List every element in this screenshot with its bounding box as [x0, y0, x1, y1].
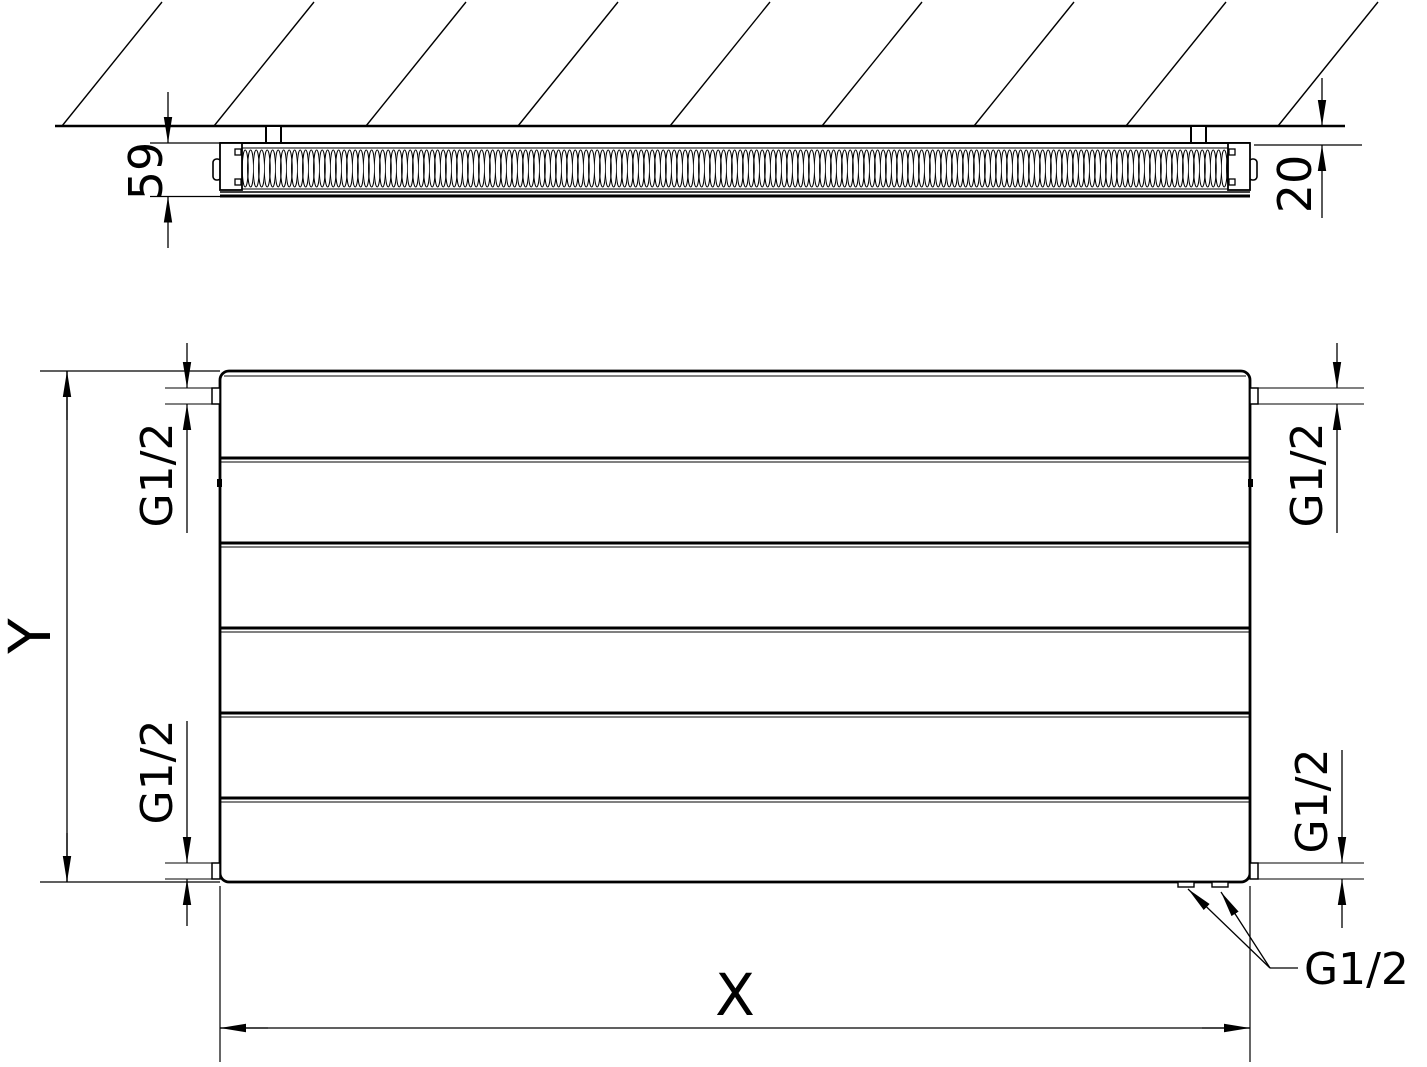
width-label: X — [715, 961, 755, 1029]
mounting-bracket-left — [266, 126, 281, 143]
connection-stub-bottom-right — [1250, 863, 1364, 879]
dimension-thread-top-right: G1/2 — [1282, 343, 1337, 533]
connection-stub-top-right — [1250, 388, 1364, 404]
end-cap-left — [213, 143, 242, 190]
dimension-wall-distance: 20 — [1254, 78, 1362, 218]
wall-distance-value: 20 — [1268, 155, 1322, 214]
convector-fin-pattern — [242, 148, 1228, 189]
connection-stub-top-left — [165, 388, 220, 404]
dimension-thread-bottom-left: G1/2 — [132, 720, 187, 926]
wall-hatching — [62, 2, 1378, 126]
height-label: Y — [0, 618, 64, 655]
thread-label-bottom-connections: G1/2 — [1304, 944, 1409, 995]
thread-label-top-left: G1/2 — [132, 423, 183, 528]
mounting-bracket-right — [1191, 126, 1206, 143]
bottom-nozzle-2 — [1212, 882, 1228, 887]
connection-stub-bottom-left — [165, 863, 220, 879]
radiator-cross-section — [213, 143, 1257, 196]
thread-label-top-right: G1/2 — [1282, 423, 1333, 528]
thread-label-bottom-left: G1/2 — [132, 720, 183, 825]
leader-thread-bottom-connections: G1/2 — [1188, 889, 1409, 995]
depth-value: 59 — [119, 142, 173, 201]
seam-mark-left — [217, 479, 222, 487]
radiator-technical-drawing: 59 20 — [0, 0, 1427, 1067]
drawing-canvas: 59 20 — [0, 0, 1427, 1067]
bottom-nozzle-1 — [1178, 882, 1194, 887]
dimension-depth: 59 — [119, 92, 220, 248]
front-view: G1/2 G1/2 G1/2 G1/2 G1/2 — [0, 343, 1409, 1062]
dimension-thread-bottom-right: G1/2 — [1287, 749, 1342, 928]
end-cap-right — [1228, 143, 1257, 190]
section-view: 59 20 — [55, 2, 1378, 248]
thread-label-bottom-right: G1/2 — [1287, 749, 1338, 854]
seam-mark-right — [1248, 479, 1253, 487]
dimension-width-x: X — [220, 886, 1250, 1062]
